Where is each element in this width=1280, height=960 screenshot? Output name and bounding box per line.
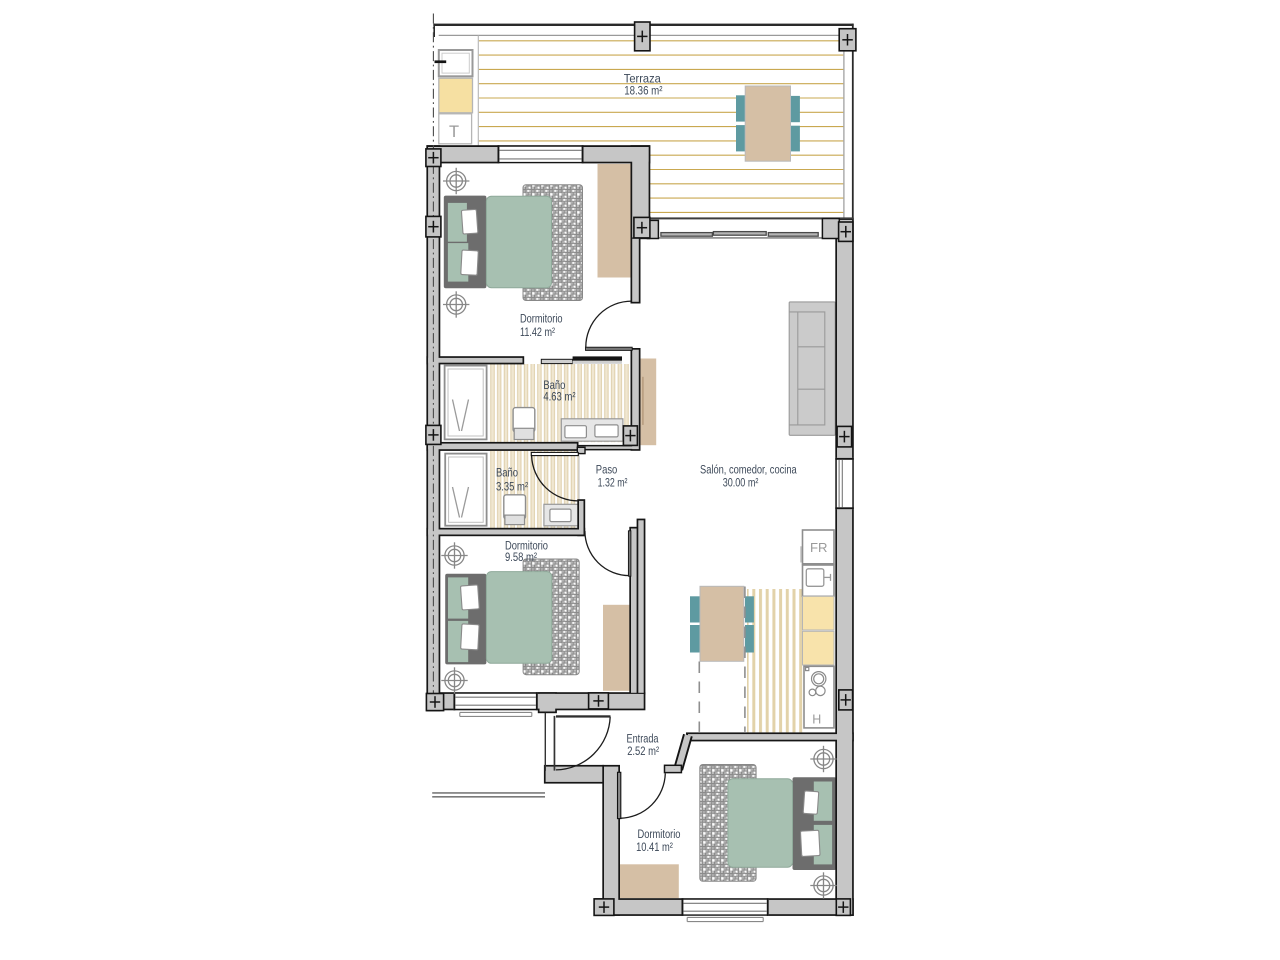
svg-text:11.42 m²: 11.42 m²	[520, 325, 555, 339]
svg-text:9.58 m²: 9.58 m²	[505, 550, 537, 564]
svg-text:1.32 m²: 1.32 m²	[598, 475, 628, 489]
svg-text:Baño: Baño	[496, 466, 518, 480]
svg-text:Salón, comedor, cocina: Salón, comedor, cocina	[700, 462, 797, 476]
svg-text:2.52 m²: 2.52 m²	[627, 744, 659, 758]
svg-text:30.00 m²: 30.00 m²	[723, 476, 759, 490]
svg-text:Dormitorio: Dormitorio	[520, 311, 563, 325]
svg-text:Dormitorio: Dormitorio	[638, 827, 681, 841]
svg-text:FR: FR	[810, 541, 828, 555]
svg-text:10.41 m²: 10.41 m²	[636, 840, 673, 854]
svg-text:4.63 m²: 4.63 m²	[543, 389, 575, 403]
svg-text:18.36 m²: 18.36 m²	[624, 83, 662, 97]
svg-text:H: H	[812, 713, 821, 727]
svg-text:T: T	[449, 123, 459, 141]
svg-text:3.35 m²: 3.35 m²	[496, 480, 528, 494]
